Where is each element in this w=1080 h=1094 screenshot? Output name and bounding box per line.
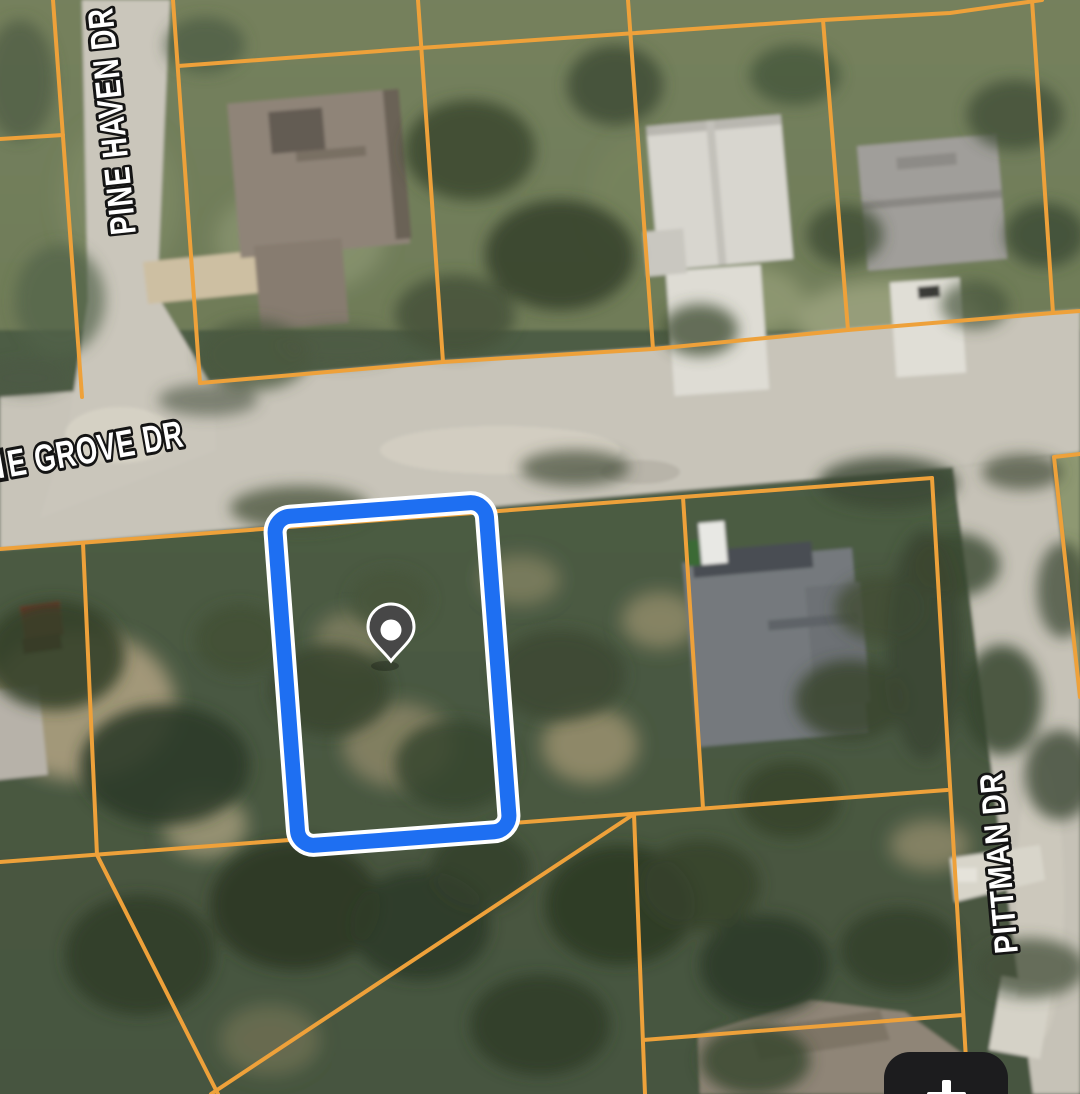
pin-shadow — [371, 661, 399, 671]
pin-dot — [381, 620, 402, 641]
satellite-map[interactable]: E GROVE DR PINE HAVEN DR PITTMAN DR — [0, 0, 1080, 1094]
map-canvas[interactable]: E GROVE DR PINE HAVEN DR PITTMAN DR — [0, 0, 1080, 1094]
zoom-in-button[interactable] — [884, 1052, 1008, 1094]
